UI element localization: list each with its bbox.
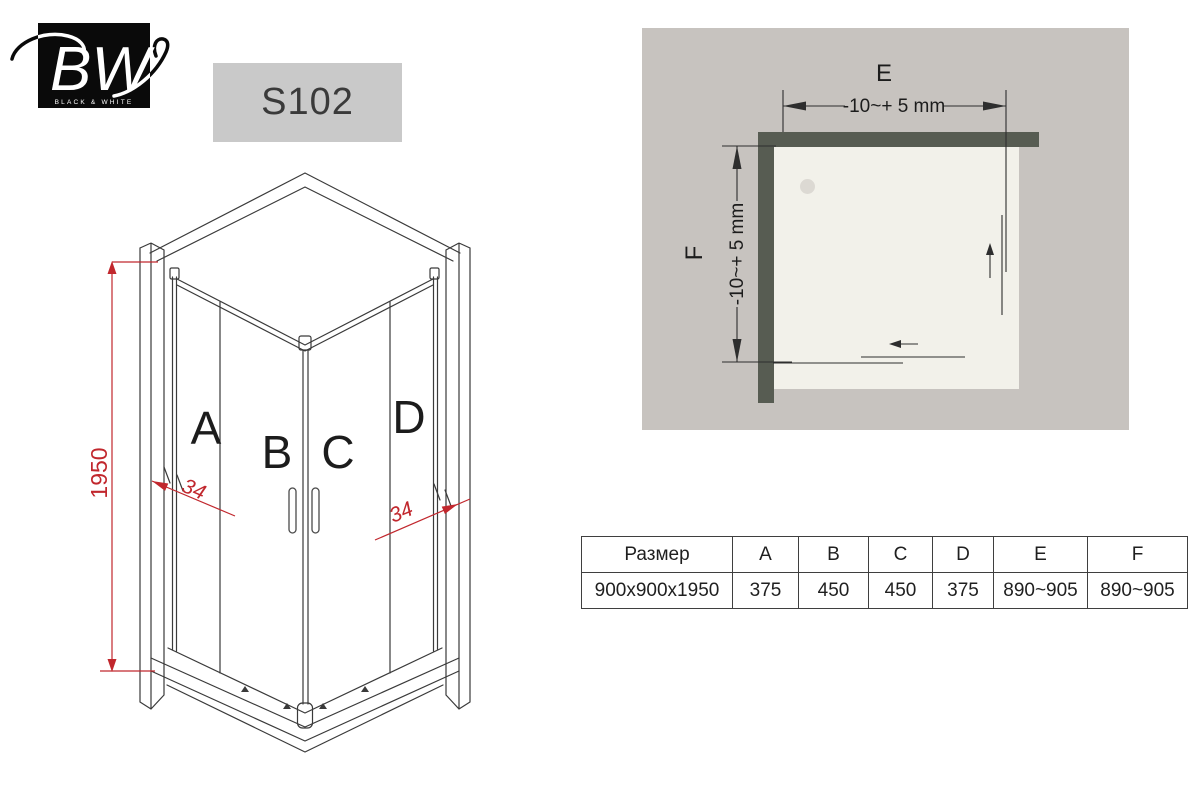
header-a: A [733,537,799,573]
value-a: 375 [733,573,799,609]
brand-logo: BW BLACK & WHITE [6,12,178,116]
height-arrow-down [108,659,117,672]
right-frame-profile [434,277,438,651]
height-arrow-up [108,261,117,274]
profile-arrow-left [152,481,168,491]
header-c: C [869,537,933,573]
model-label: S102 [261,81,354,124]
tray-rim [151,671,459,741]
profile-arrow-right [442,504,458,514]
header-d: D [933,537,994,573]
value-b: 450 [799,573,869,609]
size-table: Размер A B C D E F 900x900x1950 375 450 … [581,536,1188,609]
plan-depth-tolerance: -10~+ 5 mm [727,203,748,305]
height-dim-text: 1950 [86,447,112,498]
left-wall-post [140,243,164,709]
plan-door-right [1002,147,1006,315]
e-arrowhead-right [983,102,1006,111]
panel-label-d: D [392,391,425,443]
size-table-data-row: 900x900x1950 375 450 450 375 890~905 890… [582,573,1188,609]
door-handle-right [312,488,319,533]
bottom-rollers [241,686,369,709]
logo-initials: BW [50,35,155,104]
header-size: Размер [582,537,733,573]
logo-brand-name: BLACK & WHITE [55,99,134,106]
panel-label-c: C [321,426,354,478]
f-arrowhead-top [733,146,742,169]
header-b: B [799,537,869,573]
tray-bottom [167,685,443,752]
value-d: 375 [933,573,994,609]
header-e: E [994,537,1088,573]
slide-arrowhead-up [986,243,994,255]
left-frame-profile [173,277,177,651]
value-f: 890~905 [1088,573,1188,609]
corner-post [303,350,308,704]
size-table-header-row: Размер A B C D E F [582,537,1188,573]
plan-width-label: E [876,60,892,87]
door-handle-left [289,488,296,533]
plan-width-tolerance: -10~+ 5 mm [843,96,945,117]
right-wall-post [446,243,470,709]
plan-depth-label: F [681,246,708,261]
left-corner-bracket [170,268,179,279]
plan-view-annotations: E -10~+ 5 mm F -10~+ 5 mm [630,20,1140,438]
panel-separators [220,302,390,673]
isometric-drawing: 1950 34 34 A B C D [80,158,490,770]
value-size: 900x900x1950 [582,573,733,609]
value-e: 890~905 [994,573,1088,609]
header-f: F [1088,537,1188,573]
panel-label-b: B [262,426,293,478]
plan-door-bottom [773,357,965,363]
enclosure-frame-lines [140,173,470,752]
slide-arrowhead-left [889,340,901,348]
value-c: 450 [869,573,933,609]
profile-dim-left-text: 34 [179,474,209,504]
panel-label-a: A [191,402,222,454]
model-badge: S102 [213,63,402,142]
e-arrowhead-left [783,102,806,111]
f-arrowhead-bottom [733,339,742,362]
